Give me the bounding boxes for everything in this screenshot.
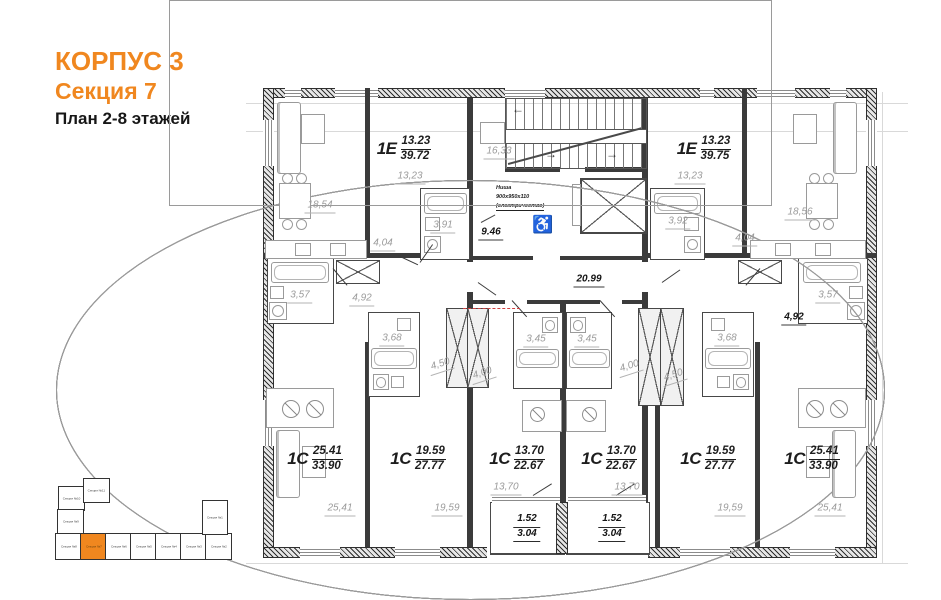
stove-burner bbox=[582, 407, 597, 422]
apartment-label: 1Е 13.2339.72 bbox=[352, 135, 456, 164]
kitchen-sink bbox=[775, 243, 791, 256]
minimap-section-1: Секция №1 bbox=[202, 500, 228, 535]
window bbox=[866, 120, 877, 166]
toilet bbox=[0, 152, 14, 172]
minimap-section-7-highlighted: Секция №7 bbox=[80, 533, 107, 560]
stove-burner bbox=[530, 407, 545, 422]
room-area: 3,91 bbox=[430, 221, 455, 234]
tv-stand bbox=[793, 114, 817, 144]
room-area: 18,56 bbox=[784, 208, 815, 221]
apartment-type: 1С bbox=[581, 449, 602, 469]
living-area: 25.41 bbox=[312, 445, 343, 460]
stove bbox=[295, 243, 311, 256]
sink bbox=[849, 286, 863, 299]
stove-burner bbox=[282, 400, 300, 418]
tv-stand bbox=[301, 114, 325, 144]
chair bbox=[823, 173, 834, 184]
room-area: 13,70 bbox=[611, 483, 642, 496]
room-area: 16,33 bbox=[483, 147, 514, 160]
apartment-type: 1С bbox=[390, 449, 411, 469]
total-area: 39.72 bbox=[401, 150, 432, 164]
minimap-section-11: Секция №11 bbox=[83, 478, 110, 503]
living-area: 13.70 bbox=[514, 445, 545, 460]
minimap-section-10: Секция №10 bbox=[58, 486, 85, 511]
balcony-area-label: 1.52 3.04 bbox=[513, 513, 540, 542]
room-area: 18,54 bbox=[304, 201, 335, 214]
section-minimap: Секция №10 Секция №11 Секция №9 Секция №… bbox=[40, 470, 250, 570]
kitchen-counter bbox=[750, 240, 866, 259]
room-area: 13,23 bbox=[394, 172, 425, 185]
room-area: 25,41 bbox=[324, 504, 355, 517]
kitchen-sink bbox=[330, 243, 346, 256]
apartment-label: 1С 19.5927.77 bbox=[662, 445, 754, 474]
window bbox=[830, 88, 846, 98]
total-area: 33.90 bbox=[809, 460, 840, 474]
apartment-label: 1С 19.5927.77 bbox=[370, 445, 466, 474]
stove-burner bbox=[806, 400, 824, 418]
room-area: 19,59 bbox=[431, 504, 462, 517]
bathtub bbox=[569, 349, 610, 368]
room-area: 4,92 bbox=[349, 294, 374, 307]
toilet bbox=[0, 66, 15, 88]
toilet bbox=[0, 22, 15, 44]
stove bbox=[815, 243, 831, 256]
balcony-door-window bbox=[492, 495, 560, 503]
room-area: 9.46 bbox=[478, 228, 503, 241]
total-area: 33.90 bbox=[312, 460, 343, 474]
chair bbox=[282, 219, 293, 230]
balcony-divider-wall bbox=[556, 502, 568, 554]
total-area: 22.67 bbox=[606, 460, 637, 474]
living-area: 25.41 bbox=[809, 445, 840, 460]
living-area: 19.59 bbox=[415, 445, 446, 460]
toilet bbox=[0, 0, 15, 22]
fire-escape-hatch-line bbox=[463, 308, 520, 309]
sofa bbox=[277, 102, 301, 174]
chair bbox=[809, 219, 820, 230]
apartment-label: 1С 13.7022.67 bbox=[476, 445, 558, 474]
room-area: 19,59 bbox=[714, 504, 745, 517]
apartment-type: 1С bbox=[680, 449, 701, 469]
apartment-label: 1С 25.4133.90 bbox=[762, 445, 862, 474]
toilet bbox=[0, 110, 15, 132]
room-area: 20.99 bbox=[573, 275, 604, 288]
stove-burner bbox=[830, 400, 848, 418]
minimap-section-6: Секция №6 bbox=[105, 533, 132, 560]
room-area: 3,92 bbox=[665, 217, 690, 230]
stove-burner bbox=[306, 400, 324, 418]
kitchen-counter bbox=[265, 240, 367, 259]
room-area: 4,04 bbox=[732, 234, 757, 247]
balcony-full-area: 3.04 bbox=[598, 528, 625, 543]
sofa bbox=[833, 102, 857, 174]
total-area: 39.75 bbox=[701, 150, 732, 164]
apartment-label: 1С 25.4133.90 bbox=[272, 445, 358, 474]
minimap-section-4: Секция №4 bbox=[155, 533, 182, 560]
balcony-half-area: 1.52 bbox=[513, 513, 540, 528]
total-area: 22.67 bbox=[514, 460, 545, 474]
minimap-section-3: Секция №3 bbox=[180, 533, 207, 560]
balcony-half-area: 1.52 bbox=[598, 513, 625, 528]
floor-plan-sheet: КОРПУС 3 Секция 7 План 2-8 этажей bbox=[0, 0, 941, 600]
extension-line bbox=[882, 92, 883, 563]
room-area: 4,04 bbox=[370, 239, 395, 252]
apartment-type: 1Е bbox=[677, 139, 697, 159]
total-area: 27.77 bbox=[415, 460, 446, 474]
minimap-section-5: Секция №5 bbox=[130, 533, 157, 560]
toilet bbox=[0, 88, 15, 110]
room-area: 3,45 bbox=[523, 335, 548, 348]
chair bbox=[296, 219, 307, 230]
apartment-label: 1Е 13.2339.75 bbox=[652, 135, 756, 164]
minimap-section-8: Секция №8 bbox=[55, 533, 82, 560]
chair bbox=[296, 173, 307, 184]
living-area: 13.23 bbox=[401, 135, 432, 150]
chair bbox=[809, 173, 820, 184]
room-area: 25,41 bbox=[814, 504, 845, 517]
apartment-type: 1Е bbox=[377, 139, 397, 159]
living-area: 13.70 bbox=[606, 445, 637, 460]
room-area: 4,92 bbox=[781, 313, 806, 326]
living-area: 19.59 bbox=[705, 445, 736, 460]
minimap-section-2: Секция №2 bbox=[205, 533, 232, 560]
room-area: 3,57 bbox=[287, 291, 312, 304]
chair bbox=[282, 173, 293, 184]
minimap-section-9: Секция №9 bbox=[57, 509, 84, 535]
room-area: 3,45 bbox=[574, 335, 599, 348]
room-area: 3,68 bbox=[714, 334, 739, 347]
balcony-door-window bbox=[568, 495, 646, 503]
toilet bbox=[0, 44, 15, 66]
balcony-area-label: 1.52 3.04 bbox=[598, 513, 625, 542]
room-area: 3,57 bbox=[815, 291, 840, 304]
washing-machine bbox=[570, 317, 586, 333]
toilet bbox=[0, 132, 14, 152]
room-area: 13,23 bbox=[674, 172, 705, 185]
apartment-type: 1С bbox=[489, 449, 510, 469]
living-area: 13.23 bbox=[701, 135, 732, 150]
apartment-type: 1С bbox=[784, 449, 805, 469]
room-area: 3,68 bbox=[379, 334, 404, 347]
window bbox=[790, 547, 835, 558]
room-area: 13,70 bbox=[490, 483, 521, 496]
balcony-full-area: 3.04 bbox=[513, 528, 540, 543]
total-area: 27.77 bbox=[705, 460, 736, 474]
chair bbox=[823, 219, 834, 230]
apartment-label: 1С 13.7022.67 bbox=[566, 445, 652, 474]
apartment-type: 1С bbox=[287, 449, 308, 469]
